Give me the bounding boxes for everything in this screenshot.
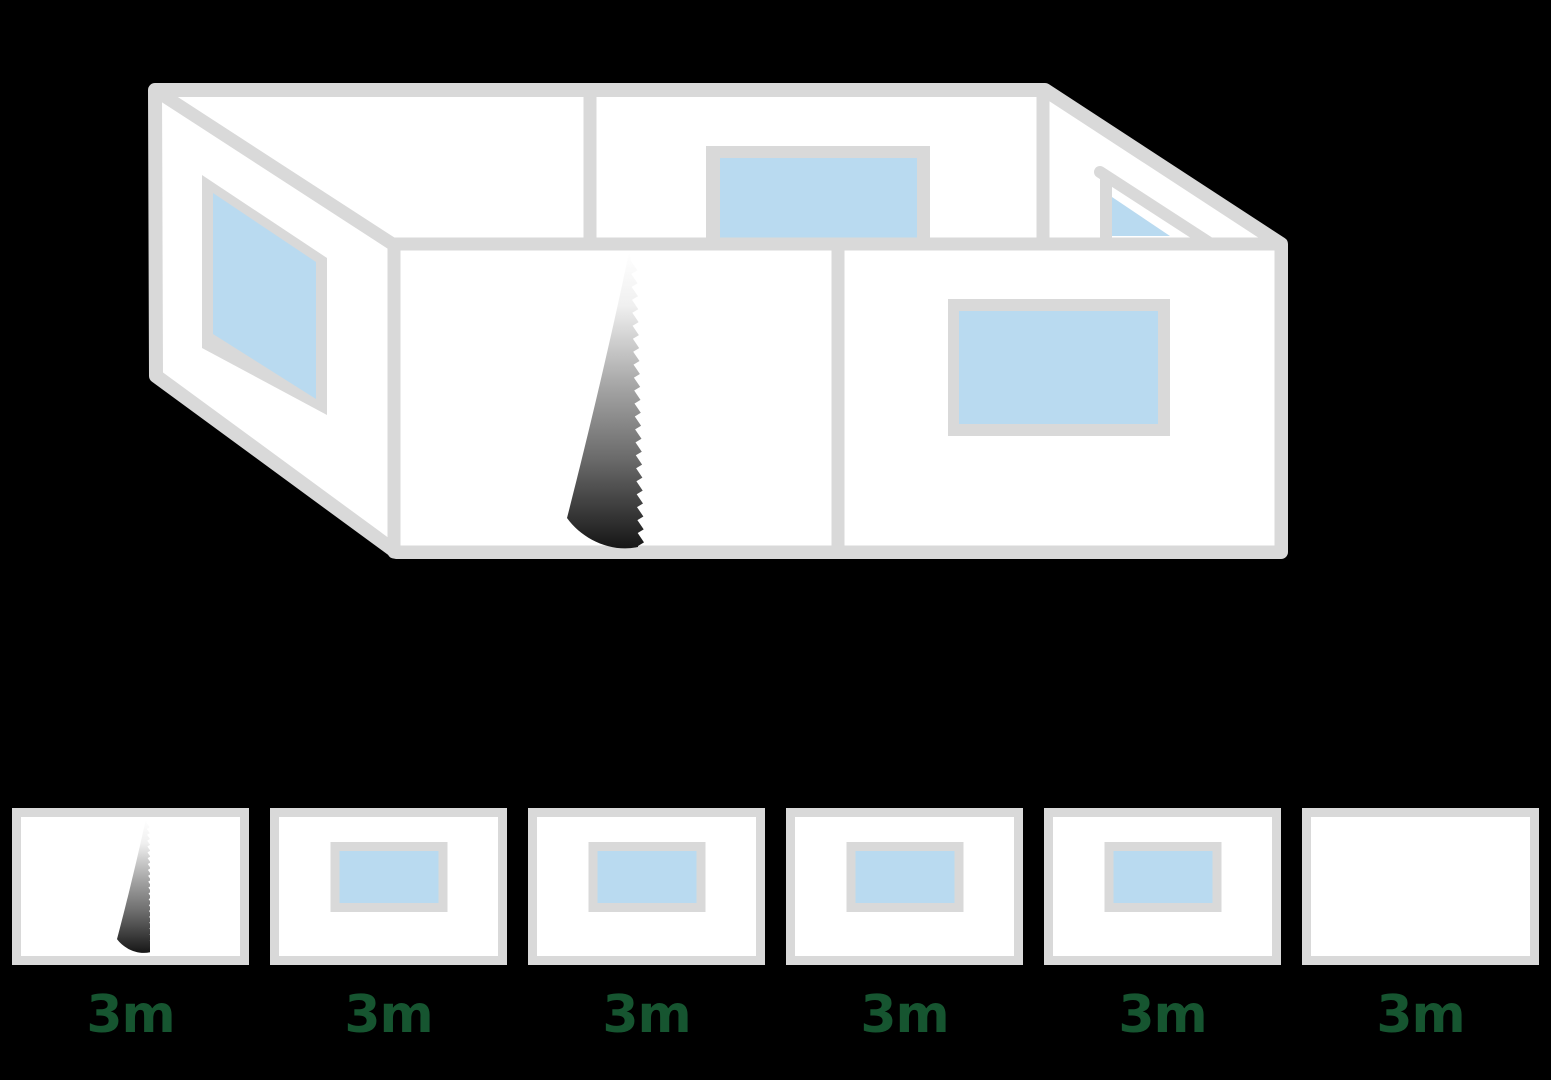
zipper-blade-small [117, 819, 150, 955]
panel-unit-4: 3m [786, 808, 1023, 1041]
panel-size-label: 3m [270, 989, 507, 1041]
panel-window [270, 808, 507, 965]
panel-size-label: 3m [528, 989, 765, 1041]
front-wall-window-glass [959, 311, 1158, 424]
panel-window [528, 808, 765, 965]
panel-unit-6: 3m [1302, 808, 1539, 1041]
zipper-blade-icon [117, 819, 150, 953]
window-glass [597, 851, 696, 903]
isometric-structure-diagram [0, 0, 1551, 790]
window-frame [330, 842, 447, 912]
panel-window [1044, 808, 1281, 965]
panel-unit-3: 3m [528, 808, 765, 1041]
window-frame [588, 842, 705, 912]
panel-size-label: 3m [1302, 989, 1539, 1041]
panel-unit-2: 3m [270, 808, 507, 1041]
window-frame [1104, 842, 1221, 912]
panel-size-label: 3m [786, 989, 1023, 1041]
panel-plain [1302, 808, 1539, 965]
panel-zipper [12, 808, 249, 965]
panel-window [786, 808, 1023, 965]
panel-unit-5: 3m [1044, 808, 1281, 1041]
window-frame [846, 842, 963, 912]
back-wall-window-glass [720, 158, 917, 238]
panel-row: 3m 3m 3m 3m 3m [0, 808, 1551, 1041]
window-glass [855, 851, 954, 903]
window-glass [1113, 851, 1212, 903]
panel-size-label: 3m [1044, 989, 1281, 1041]
window-glass [339, 851, 438, 903]
panel-size-label: 3m [12, 989, 249, 1041]
panel-unit-1: 3m [12, 808, 249, 1041]
